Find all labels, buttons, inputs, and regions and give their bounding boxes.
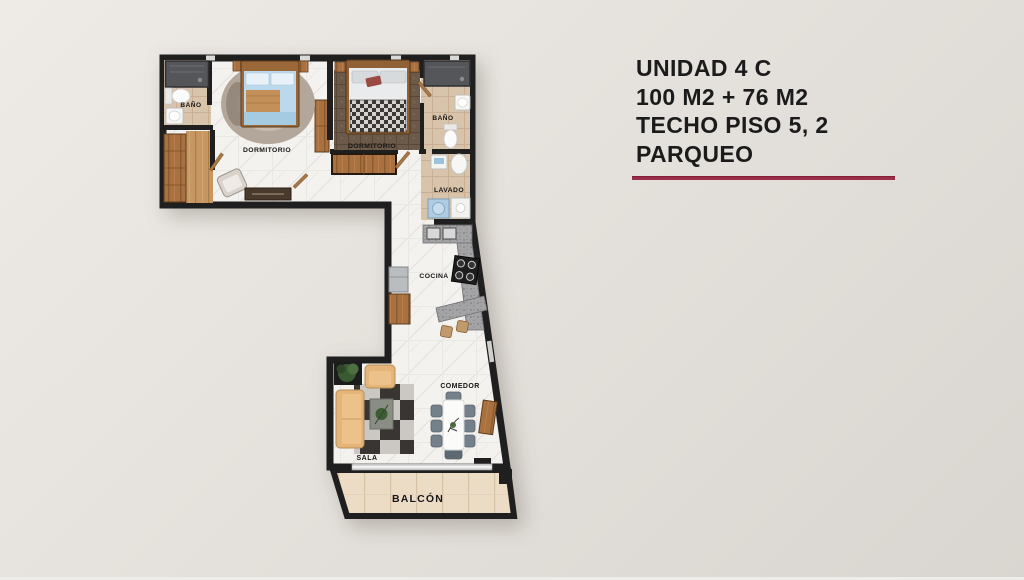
unit-roof-floor: TECHO PISO 5, 2 [636,111,926,140]
room-label-laundry: LAVADO [434,187,464,194]
washer-icon [428,198,470,218]
room-label-bed1: DORMITORIO [243,147,291,154]
stove-icon [451,255,479,284]
coffee-table-icon [370,399,393,429]
sink-icon [455,95,470,110]
wardrobe-icon [332,154,396,174]
bed-icon [346,60,410,134]
accent-divider-line [632,176,895,180]
bed-icon [241,61,299,127]
toilet-icon [444,124,457,148]
plant-icon [334,362,362,385]
closet-icon [164,134,186,202]
window-icon [489,341,492,362]
room-label-balcony: BALCÓN [392,492,444,505]
room-label-bed2: DORMITORIO [348,143,396,150]
sofa-icon [336,390,364,448]
room-label-dining: COMEDOR [440,383,479,390]
shower-icon [424,61,470,86]
cabinet-icon [389,294,410,324]
sink-icon [166,108,183,124]
unit-info-panel: UNIDAD 4 C 100 M2 + 76 M2 TECHO PISO 5, … [636,54,926,168]
dining-table-icon [443,400,464,450]
room-label-living: SALA [356,455,377,462]
sliding-door-icon [352,464,492,470]
pillar [499,469,512,484]
room-label-kitchen: COCINA [419,273,448,280]
floor-plan: BAÑO DORMITORIO DORMITORIO BAÑO LAVADO C… [150,45,528,527]
fridge-icon [389,267,408,292]
unit-title: UNIDAD 4 C [636,54,926,83]
dresser-icon [245,188,291,200]
unit-parking: PARQUEO [636,140,926,169]
entry-wood-floor [186,131,213,203]
armchair-icon [365,365,395,388]
shower-icon [166,61,209,87]
unit-area: 100 M2 + 76 M2 [636,83,926,112]
room-label-bath1: BAÑO [180,100,201,109]
closet-icon [315,100,329,152]
room-label-bath2: BAÑO [432,113,453,122]
